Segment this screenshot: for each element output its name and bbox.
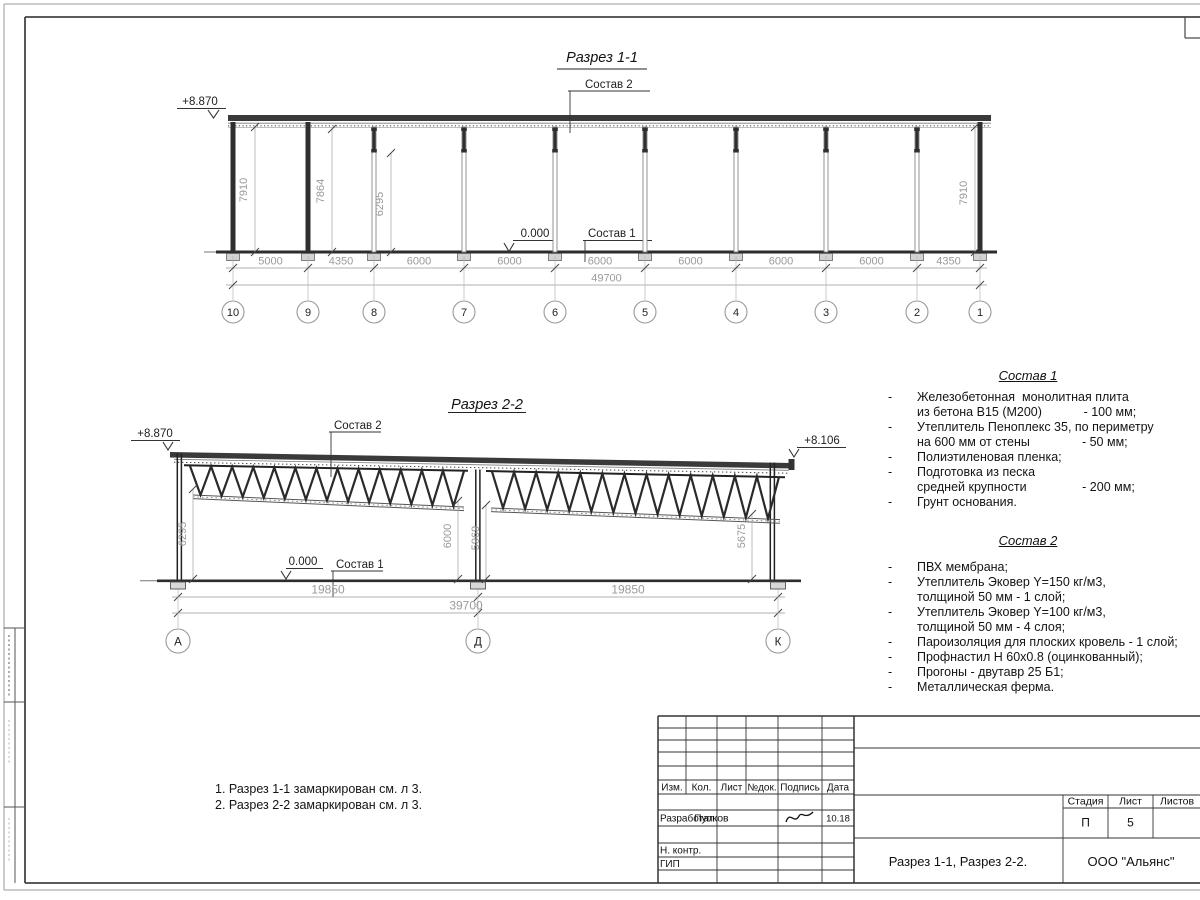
list-item: -Утеплитель Эковер Y=150 кг/м3, xyxy=(888,575,1178,590)
col-podpis: Подпись xyxy=(780,783,820,794)
sostav2-heading: Состав 2 xyxy=(938,533,1118,548)
grid-label: 6 xyxy=(552,307,558,319)
ncontr-label: Н. контр. xyxy=(660,846,701,857)
section2-zero-mark: 0.000 xyxy=(281,556,323,579)
grid-label: 9 xyxy=(305,307,311,319)
stage-value: П xyxy=(1081,816,1090,830)
grid-label: 3 xyxy=(823,307,829,319)
section1-elevation-mark: +8.870 xyxy=(177,96,226,118)
section1-roof xyxy=(228,115,991,128)
signature xyxy=(786,812,813,822)
span-dim-label: 6000 xyxy=(497,256,521,268)
sostav1-list: -Железобетонная монолитная плита из бето… xyxy=(888,390,1154,510)
section2-title: Разрез 2-2 xyxy=(451,397,523,413)
developer-name: Пупков xyxy=(694,813,729,825)
svg-text:Состав 1: Состав 1 xyxy=(588,228,636,240)
svg-text:+8.106: +8.106 xyxy=(804,435,840,447)
grid-label: А xyxy=(174,637,182,649)
grid-label: 2 xyxy=(914,307,920,319)
column-head xyxy=(915,131,918,149)
total-dim-label: 39700 xyxy=(449,599,483,613)
column-head xyxy=(643,131,646,149)
col-list: Лист xyxy=(721,783,743,794)
section2-elevation-left: +8.870 xyxy=(131,428,180,450)
span-dim-label: 4350 xyxy=(936,256,960,268)
column-head-plate xyxy=(914,128,920,132)
svg-text:Состав 2: Состав 2 xyxy=(334,420,382,432)
span-dim-label: 6000 xyxy=(407,256,431,268)
height-dim-label: 7910 xyxy=(238,178,250,202)
column-head-plate xyxy=(823,128,829,132)
drawing-notes: 1. Разрез 1-1 замаркирован см. л 3. 2. Р… xyxy=(215,782,422,813)
grid-label: 4 xyxy=(733,307,739,319)
list-item: -Утеплитель Эковер Y=100 кг/м3, xyxy=(888,605,1178,620)
company-name: ООО "Альянс" xyxy=(1088,854,1175,869)
corner-cell xyxy=(1185,17,1200,38)
svg-text:Состав 1: Состав 1 xyxy=(336,559,384,571)
gip-label: ГИП xyxy=(660,859,680,870)
stage-label: Стадия xyxy=(1068,796,1104,808)
list-item: -Подготовка из песка xyxy=(888,465,1154,480)
section2-elevation-right: +8.106 xyxy=(789,435,846,457)
drawing-sheet: Изм. Кол. Лист №док. Подпись Дата Разраб… xyxy=(0,0,1200,900)
note-line: 2. Разрез 2-2 замаркирован см. л 3. xyxy=(215,798,422,814)
col-ndok: №док. xyxy=(747,783,776,794)
list-item: -Полиэтиленовая пленка; xyxy=(888,450,1154,465)
section-1-1-drawing: Разрез 1-1 +8.870 0.000 Состав 2 xyxy=(130,40,1010,330)
col-izm: Изм. xyxy=(661,783,682,794)
list-item: средней крупности - 200 мм; xyxy=(888,480,1154,495)
section-2-2-drawing: Разрез 2-2 xyxy=(120,393,870,670)
column-head xyxy=(734,131,737,149)
column xyxy=(306,122,311,252)
span-dim-label: 4350 xyxy=(329,256,353,268)
column-head-plate xyxy=(552,128,558,132)
column-head xyxy=(824,131,827,149)
list-item: толщиной 50 мм - 4 слоя; xyxy=(888,620,1178,635)
svg-text:Состав 2: Состав 2 xyxy=(585,79,633,91)
column xyxy=(231,122,236,252)
height-dim-label: 7864 xyxy=(315,179,327,203)
footing xyxy=(471,582,486,589)
span-dim-label: 5000 xyxy=(258,256,282,268)
doc-title: Разрез 1-1, Разрез 2-2. xyxy=(889,854,1027,869)
span-dim-label: 6000 xyxy=(859,256,883,268)
truss-web xyxy=(492,472,779,519)
column-head-plate xyxy=(642,128,648,132)
sheet-label: Лист xyxy=(1119,796,1142,808)
span-dim-label: 19850 xyxy=(611,583,645,597)
span-dim-label: 6000 xyxy=(769,256,793,268)
col-data: Дата xyxy=(827,783,850,794)
grid-label: 1 xyxy=(977,307,983,319)
list-item: из бетона В15 (М200) - 100 мм; xyxy=(888,405,1154,420)
column-head-plate xyxy=(914,149,920,153)
sostav2-list: -ПВХ мембрана; -Утеплитель Эковер Y=150 … xyxy=(888,560,1178,695)
column-head-plate xyxy=(552,149,558,153)
total-dim-label: 49700 xyxy=(591,273,622,285)
column-head-plate xyxy=(733,149,739,153)
height-dim-label: 6295 xyxy=(177,522,189,546)
span-dim-label: 19850 xyxy=(311,583,345,597)
note-line: 1. Разрез 1-1 замаркирован см. л 3. xyxy=(215,782,422,798)
height-dim-label: 6295 xyxy=(374,192,386,216)
svg-text:+8.870: +8.870 xyxy=(137,428,173,440)
grid-label: 10 xyxy=(227,307,239,319)
column-head xyxy=(462,131,465,149)
list-item: -Железобетонная монолитная плита xyxy=(888,390,1154,405)
sheets-label: Листов xyxy=(1160,796,1195,808)
svg-text:+8.870: +8.870 xyxy=(182,96,218,108)
list-item: -Утеплитель Пеноплекс 35, по периметру xyxy=(888,420,1154,435)
col-kol: Кол. xyxy=(692,783,712,794)
svg-text:0.000: 0.000 xyxy=(521,228,550,240)
svg-text:0.000: 0.000 xyxy=(289,556,318,568)
column-head xyxy=(372,131,375,149)
list-item: на 600 мм от стены - 50 мм; xyxy=(888,435,1154,450)
footing xyxy=(171,582,186,589)
grid-label: Д xyxy=(474,637,482,649)
height-dim-label: 5675 xyxy=(736,524,748,548)
column-head-plate xyxy=(461,128,467,132)
list-item: -Профнастил Н 60х0.8 (оцинкованный); xyxy=(888,650,1178,665)
span-dim-label: 6000 xyxy=(678,256,702,268)
column-head-plate xyxy=(461,149,467,153)
section1-zero-mark: 0.000 xyxy=(504,228,557,252)
height-dim-label: 6000 xyxy=(442,524,454,548)
list-item: -Прогоны - двутавр 25 Б1; xyxy=(888,665,1178,680)
list-item: -ПВХ мембрана; xyxy=(888,560,1178,575)
height-dim-label: 7910 xyxy=(958,181,970,205)
grid-label: 5 xyxy=(642,307,648,319)
column-head-plate xyxy=(642,149,648,153)
grid-label: К xyxy=(775,637,782,649)
left-strip xyxy=(4,628,25,883)
column-head-plate xyxy=(823,149,829,153)
list-item: -Пароизоляция для плоских кровель - 1 сл… xyxy=(888,635,1178,650)
column-head-plate xyxy=(733,128,739,132)
column-head xyxy=(553,131,556,149)
list-item: толщиной 50 мм - 1 слой; xyxy=(888,590,1178,605)
section1-title: Разрез 1-1 xyxy=(566,50,638,66)
section2-roof xyxy=(170,452,795,473)
section1-leader-sostav2: Состав 2 xyxy=(568,79,650,133)
height-dim-label: 5969 xyxy=(470,526,482,550)
column-head-plate xyxy=(371,149,377,153)
list-item: -Грунт основания. xyxy=(888,495,1154,510)
list-item: -Металлическая ферма. xyxy=(888,680,1178,695)
column xyxy=(978,122,983,252)
grid-label: 8 xyxy=(371,307,377,319)
span-dim-label: 6000 xyxy=(588,256,612,268)
footing xyxy=(771,582,786,589)
developer-date: 10.18 xyxy=(826,814,850,825)
sostav1-heading: Состав 1 xyxy=(938,368,1118,383)
column-head-plate xyxy=(371,128,377,132)
sheet-value: 5 xyxy=(1127,816,1134,830)
grid-label: 7 xyxy=(461,307,467,319)
